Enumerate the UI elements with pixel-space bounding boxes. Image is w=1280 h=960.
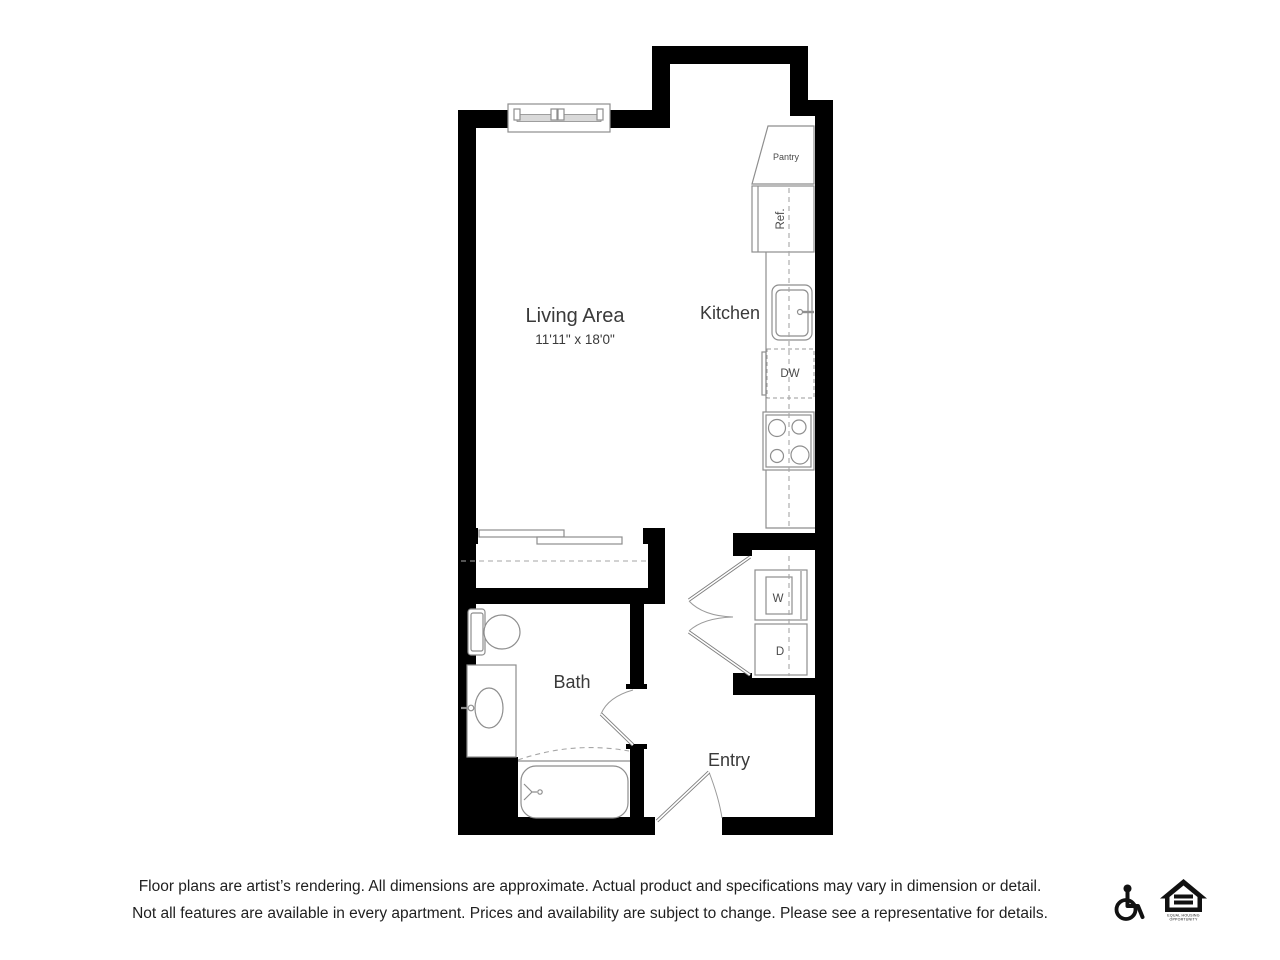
sliding-door-panel: [479, 530, 564, 537]
disclaimer-line-1: Floor plans are artist’s rendering. All …: [139, 878, 1042, 895]
equal-housing-opportunity-icon: EQUAL HOUSING OPPORTUNITY: [1160, 879, 1207, 922]
wall-segment: [630, 596, 644, 688]
equal-housing-text-2: OPPORTUNITY: [1169, 918, 1197, 922]
wall-segment: [626, 684, 647, 689]
wall-segment: [722, 817, 833, 835]
wall-segment: [458, 757, 518, 835]
burner: [792, 420, 806, 434]
wall-segment: [733, 673, 752, 695]
shower-curtain: [518, 748, 629, 760]
wall-segment: [626, 744, 647, 749]
wall-segment: [458, 528, 478, 544]
washer-label: W: [773, 593, 784, 605]
wall-segment: [652, 46, 808, 64]
dryer-label: D: [776, 646, 784, 658]
kitchen-label: Kitchen: [700, 303, 760, 323]
entry-label: Entry: [708, 750, 750, 770]
bath-label: Bath: [553, 672, 590, 692]
living-area-label: Living Area: [526, 305, 626, 327]
burner: [769, 420, 786, 437]
floor-plan-page: Living Area 11'11" x 18'0" Kitchen Bath …: [0, 0, 1280, 960]
window: [508, 104, 610, 132]
disclaimer-line-2: Not all features are available in every …: [132, 905, 1048, 922]
window-mullion: [551, 109, 557, 120]
pantry-label: Pantry: [773, 152, 800, 162]
burner: [771, 450, 784, 463]
bathroom-vanity-sink: [461, 665, 516, 757]
wall-segment: [815, 108, 833, 835]
window-mullion: [514, 109, 520, 120]
sliding-door-panel: [537, 537, 622, 544]
refrigerator-label: Ref.: [775, 208, 787, 229]
kitchen-sink: [772, 285, 814, 340]
entry-door: [657, 772, 722, 821]
closet-sliding-doors: [461, 530, 647, 561]
kitchen-fixtures: [752, 126, 815, 528]
wall-segment: [630, 744, 644, 835]
laundry-bifold-doors: [689, 557, 750, 675]
bath-door: [601, 690, 633, 745]
living-area-dimensions: 11'11" x 18'0": [535, 332, 615, 347]
wall-segment: [733, 533, 752, 556]
burner: [791, 446, 809, 464]
bathtub: [518, 748, 630, 818]
window-mullion: [597, 109, 603, 120]
floor-plan-diagram: Living Area 11'11" x 18'0" Kitchen Bath …: [0, 0, 1280, 960]
footer-disclaimer: Floor plans are artist’s rendering. All …: [132, 878, 1048, 922]
toilet: [468, 609, 520, 655]
window-mullion: [558, 109, 564, 120]
washer-dryer: [755, 570, 807, 675]
dishwasher-label: DW: [780, 368, 799, 380]
wall-segment: [458, 110, 510, 128]
wheelchair-accessible-icon: [1117, 885, 1143, 920]
